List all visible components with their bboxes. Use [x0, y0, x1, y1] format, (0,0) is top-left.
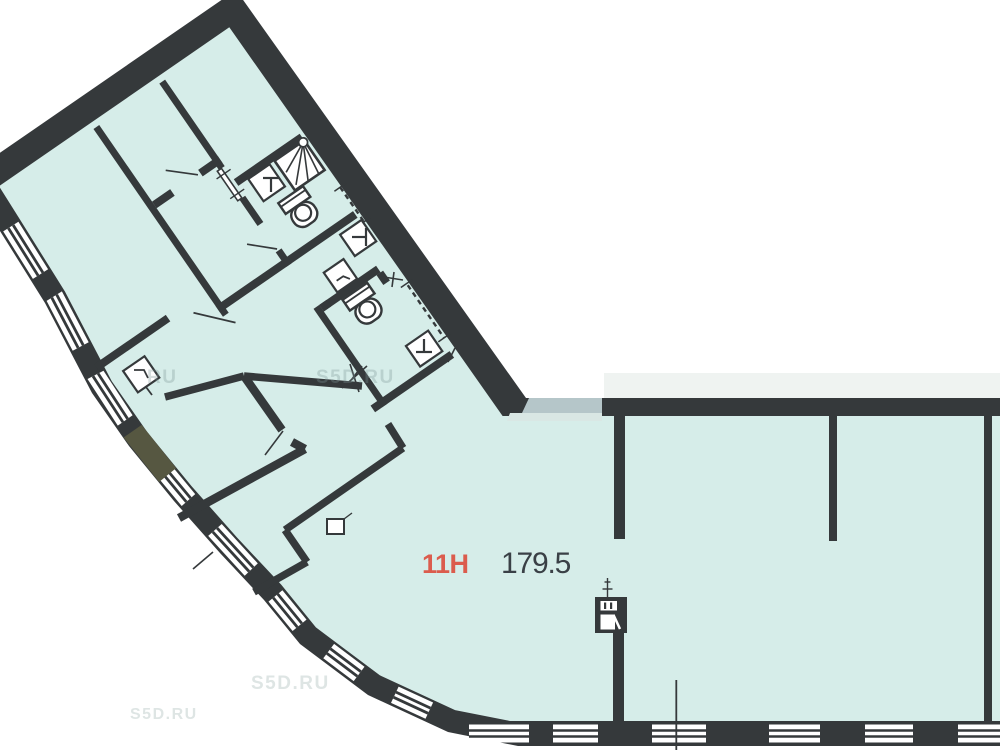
svg-text:179.5: 179.5 [501, 547, 571, 580]
svg-text:S5D.RU: S5D.RU [130, 706, 198, 723]
svg-text:RU: RU [147, 367, 177, 388]
svg-text:S5D.RU: S5D.RU [316, 367, 395, 388]
svg-text:S5D.RU: S5D.RU [251, 673, 330, 694]
svg-text:11H: 11H [422, 549, 469, 579]
